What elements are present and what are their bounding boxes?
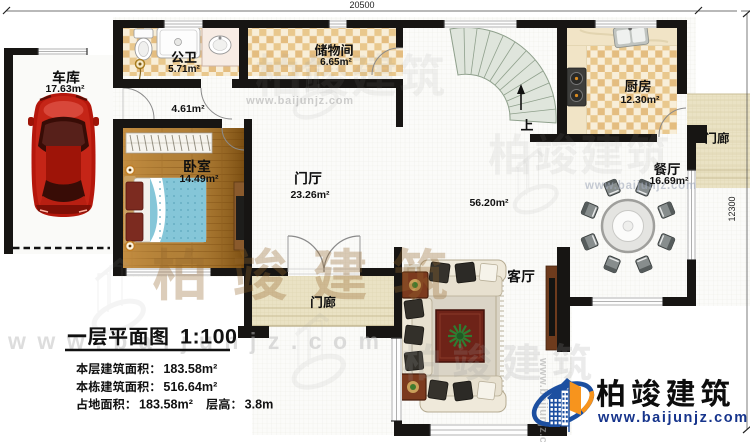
svg-text:16.69m²: 16.69m² [649,175,689,187]
svg-text:17.63m²: 17.63m² [45,83,85,95]
svg-text:56.20m²: 56.20m² [469,197,509,209]
svg-text:5.71m²: 5.71m² [168,64,200,75]
svg-text:14.49m²: 14.49m² [179,173,219,185]
svg-text:516.64m²: 516.64m² [163,380,217,394]
svg-text:3.8m: 3.8m [245,398,274,412]
svg-text:23.26m²: 23.26m² [290,189,330,201]
svg-text:6.65m²: 6.65m² [320,57,352,68]
svg-text:12.30m²: 12.30m² [620,94,660,106]
svg-text:1:100: 1:100 [180,325,238,349]
svg-text:183.58m²: 183.58m² [139,398,193,412]
svg-text:20500: 20500 [349,0,374,10]
svg-text:12300: 12300 [727,196,737,221]
svg-text:www.baijunjz.com: www.baijunjz.com [597,410,749,426]
svg-text:4.61m²: 4.61m² [171,103,205,115]
svg-text:183.58m²: 183.58m² [163,362,217,376]
